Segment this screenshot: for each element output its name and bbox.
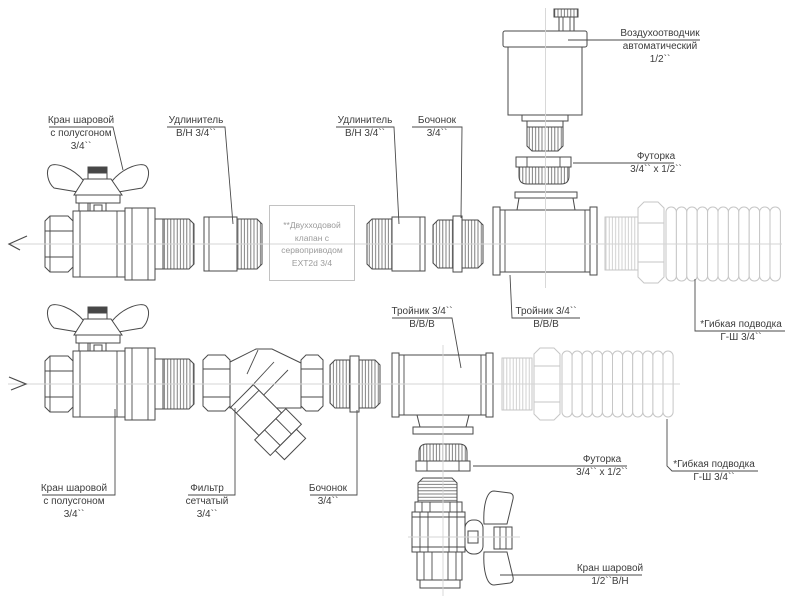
label-air-vent: Воздухоотводчик автоматический 1/2`` <box>590 27 730 66</box>
leader-barrel-top <box>412 127 462 218</box>
label-ball-valve-bottom-right: Кран шаровой 1/2``В/Н <box>540 562 680 588</box>
flow-arrow-left-icon <box>9 236 27 250</box>
label-barrel-top: Бочонок 3/4`` <box>367 114 507 140</box>
label-tee-bottom: Тройник 3/4`` В/В/В <box>352 305 492 331</box>
label-extender-1: Удлинитель В/Н 3/4`` <box>126 114 266 140</box>
ball-valve-top-left <box>45 165 194 280</box>
label-ball-valve-bottom-left: Кран шаровой с полусгоном 3/4`` <box>4 482 144 521</box>
label-bush-top: Футорка 3/4`` х 1/2`` <box>586 150 726 176</box>
tee-bottom <box>392 353 493 434</box>
label-tee-top: Тройник 3/4`` В/В/В <box>476 305 616 331</box>
label-filter: Фильтр сетчатый 3/4`` <box>137 482 277 521</box>
ball-valve-bottom-left <box>45 305 194 420</box>
label-hose-bottom: *Гибкая подводка Г-Ш 3/4`` <box>644 458 784 484</box>
flex-hose-top <box>605 202 780 283</box>
reducing-bush-top <box>516 157 571 184</box>
leader-extender-1 <box>167 127 233 224</box>
ball-valve-bottom-right <box>412 478 513 588</box>
diagram-canvas: Кран шаровой с полусгоном 3/4`` Удлините… <box>0 0 800 600</box>
tee-top <box>493 192 597 275</box>
label-hose-top: *Гибкая подводка Г-Ш 3/4`` <box>671 318 800 344</box>
air-vent <box>503 9 587 151</box>
strainer-filter <box>203 349 323 465</box>
label-barrel-bottom: Бочонок 3/4`` <box>258 482 398 508</box>
servo-valve-note-box: **Двухходовой клапан с сервоприводом EXT… <box>269 205 355 281</box>
flow-arrow-right-icon <box>9 377 26 390</box>
